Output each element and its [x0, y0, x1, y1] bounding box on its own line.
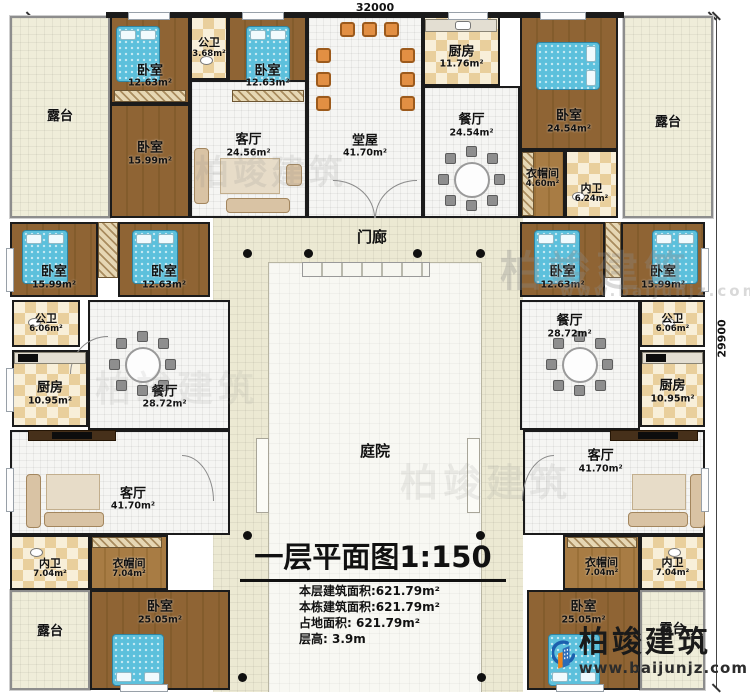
- tv-icon: [52, 432, 92, 439]
- toilet-icon: [572, 192, 585, 201]
- terrace-bottom-left: 露台: [10, 590, 90, 690]
- sink-icon: [455, 21, 471, 30]
- terrace-label: 露台: [12, 625, 88, 639]
- terrace-label: 露台: [12, 110, 108, 124]
- courtyard-steps: [302, 262, 430, 277]
- toilet-icon: [662, 318, 675, 327]
- room-private-bath-3: 内卫7.04m²: [640, 535, 705, 590]
- terrace-top-left: 露台: [10, 16, 110, 218]
- wardrobe-strip: [232, 90, 304, 102]
- logo-brand-text: 柏竣建筑: [579, 626, 748, 660]
- tv-icon: [638, 432, 678, 439]
- sofa-icon: [44, 512, 104, 527]
- stove-icon: [646, 354, 666, 362]
- logo-site-text: www.baijunjz.com: [579, 660, 748, 676]
- info-line-height: 层高: 3.9m: [299, 631, 489, 647]
- plan-title: 一层平面图1:150: [240, 534, 506, 582]
- room-private-bath-2: 内卫7.04m²: [10, 535, 90, 590]
- bed-icon: [536, 42, 600, 90]
- toilet-icon: [30, 548, 43, 557]
- armchair-icon: [286, 164, 302, 186]
- courtyard-pilaster: [256, 438, 269, 513]
- room-private-bath-1: 内卫6.24m²: [565, 150, 618, 218]
- terrace-label: 露台: [625, 116, 711, 130]
- window: [701, 248, 709, 292]
- column-dot: [476, 249, 485, 258]
- bed-icon: [652, 230, 698, 284]
- wardrobe-strip: [567, 537, 637, 548]
- rug: [220, 158, 280, 194]
- rug: [46, 474, 100, 510]
- dining-table-icon: [454, 162, 490, 198]
- sofa-icon: [628, 512, 688, 527]
- bed-icon: [534, 230, 580, 284]
- dimension-right-label: 29900: [716, 309, 729, 369]
- toilet-icon: [200, 56, 213, 65]
- info-line-land-area: 占地面积: 621.79m²: [299, 615, 489, 631]
- wardrobe-strip: [605, 222, 621, 278]
- bed-icon: [112, 634, 164, 686]
- toilet-icon: [28, 318, 41, 327]
- column-dot: [477, 673, 486, 682]
- window: [242, 12, 284, 20]
- wardrobe-strip: [92, 537, 162, 548]
- bed-icon: [116, 26, 160, 82]
- wardrobe-strip: [114, 90, 186, 102]
- wardrobe-strip: [522, 152, 534, 216]
- bed-icon: [246, 26, 290, 82]
- baijun-building-logo-icon: [552, 626, 575, 684]
- rug: [632, 474, 686, 510]
- room-public-bath-1: 公卫3.68m²: [190, 16, 228, 80]
- plan-info: 本层建筑面积:621.79m² 本栋建筑面积:621.79m² 占地面积: 62…: [299, 583, 489, 647]
- bed-icon: [132, 230, 178, 284]
- room-public-bath-2: 公卫6.06m²: [12, 300, 80, 347]
- column-dot: [238, 673, 247, 682]
- room-bedroom-4: 卧室15.99m²: [110, 104, 190, 218]
- window: [128, 12, 170, 20]
- floor-plan: 32000 29900 门廊 庭院 露台 露台 露台 露台 卧室12.63m² …: [0, 0, 750, 696]
- info-line-floor-area: 本层建筑面积:621.79m²: [299, 583, 489, 599]
- window: [540, 12, 586, 20]
- courtyard-pilaster: [467, 438, 480, 513]
- info-line-building-area: 本栋建筑面积:621.79m²: [299, 599, 489, 615]
- window: [120, 684, 168, 692]
- dining-table-icon: [562, 347, 598, 383]
- wardrobe-strip: [98, 222, 118, 278]
- sofa-icon: [226, 198, 290, 213]
- window: [701, 468, 709, 512]
- window: [6, 468, 14, 512]
- window: [6, 368, 14, 412]
- sofa-icon: [194, 148, 209, 204]
- column-dot: [243, 249, 252, 258]
- toilet-icon: [668, 548, 681, 557]
- column-dot: [304, 249, 313, 258]
- stove-icon: [18, 354, 38, 362]
- window: [448, 12, 488, 20]
- baijun-logo: 柏竣建筑 www.baijunjz.com: [552, 626, 748, 692]
- terrace-top-right: 露台: [623, 16, 713, 218]
- dining-table-icon: [125, 347, 161, 383]
- column-dot: [413, 249, 422, 258]
- sofa-icon: [26, 474, 41, 528]
- bed-icon: [22, 230, 68, 284]
- window: [6, 248, 14, 292]
